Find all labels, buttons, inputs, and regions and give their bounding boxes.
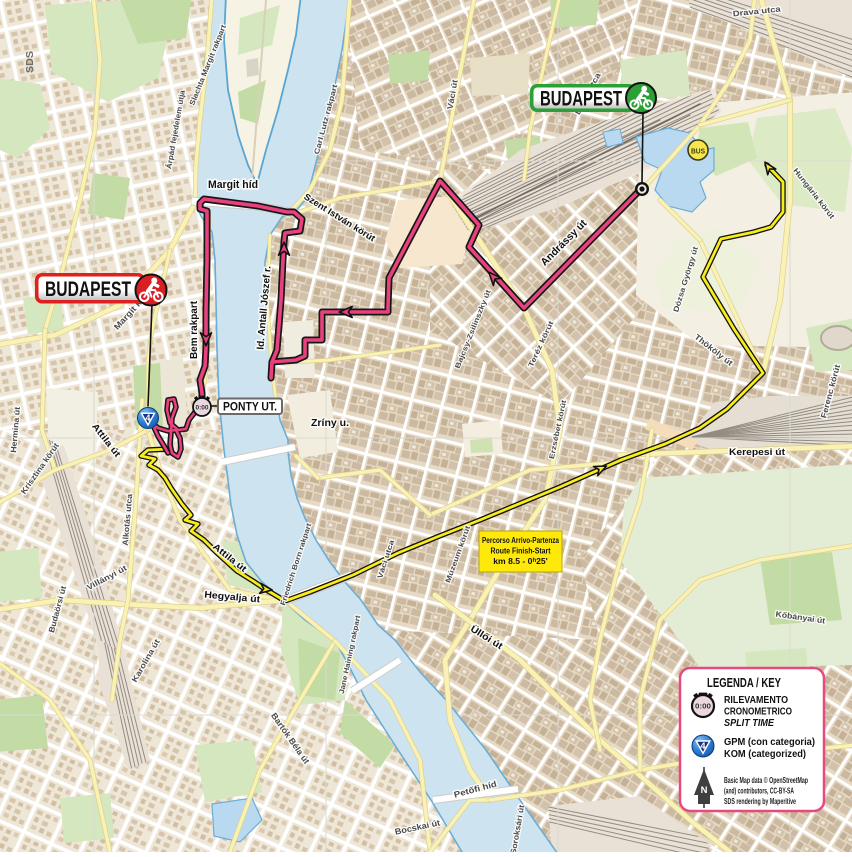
svg-text:BUS: BUS — [691, 149, 705, 156]
svg-text:Route Finish-Start: Route Finish-Start — [491, 546, 551, 556]
svg-text:CRONOMETRICO: CRONOMETRICO — [724, 706, 792, 718]
svg-text:N: N — [701, 785, 708, 796]
svg-text:LEGENDA / KEY: LEGENDA / KEY — [707, 676, 781, 690]
svg-text:Kerepesi út: Kerepesi út — [729, 447, 786, 458]
svg-text:BUDAPEST: BUDAPEST — [540, 88, 622, 111]
svg-text:SDS: SDS — [25, 51, 36, 73]
svg-text:km 8.5 - 0h25': km 8.5 - 0h25' — [493, 556, 547, 566]
svg-text:Bem rakpart: Bem rakpart — [189, 300, 200, 359]
svg-text:4: 4 — [700, 741, 706, 751]
svg-text:4: 4 — [146, 413, 151, 423]
svg-text:Zríny u.: Zríny u. — [311, 418, 349, 429]
svg-text:RILEVAMENTO: RILEVAMENTO — [724, 694, 788, 706]
svg-text:BUDAPEST: BUDAPEST — [45, 278, 131, 301]
svg-text:KOM (categorized): KOM (categorized) — [724, 748, 806, 760]
svg-text:SPLIT TIME: SPLIT TIME — [724, 717, 775, 729]
svg-text:PONTY UT.: PONTY UT. — [223, 402, 277, 414]
svg-text:0:00: 0:00 — [195, 404, 208, 411]
svg-text:Margit híd: Margit híd — [208, 179, 258, 191]
svg-text:SDS rendering by Maperitive: SDS rendering by Maperitive — [724, 797, 796, 806]
svg-text:Percorso Arrivo-Partenza: Percorso Arrivo-Partenza — [482, 535, 559, 545]
svg-text:GPM (con categoria): GPM (con categoria) — [724, 736, 815, 748]
svg-text:(and) contributors, CC-BY-SA: (and) contributors, CC-BY-SA — [724, 787, 794, 796]
svg-text:Basic Map data © OpenStreetMap: Basic Map data © OpenStreetMap — [724, 776, 808, 785]
svg-text:0:00: 0:00 — [695, 704, 711, 711]
